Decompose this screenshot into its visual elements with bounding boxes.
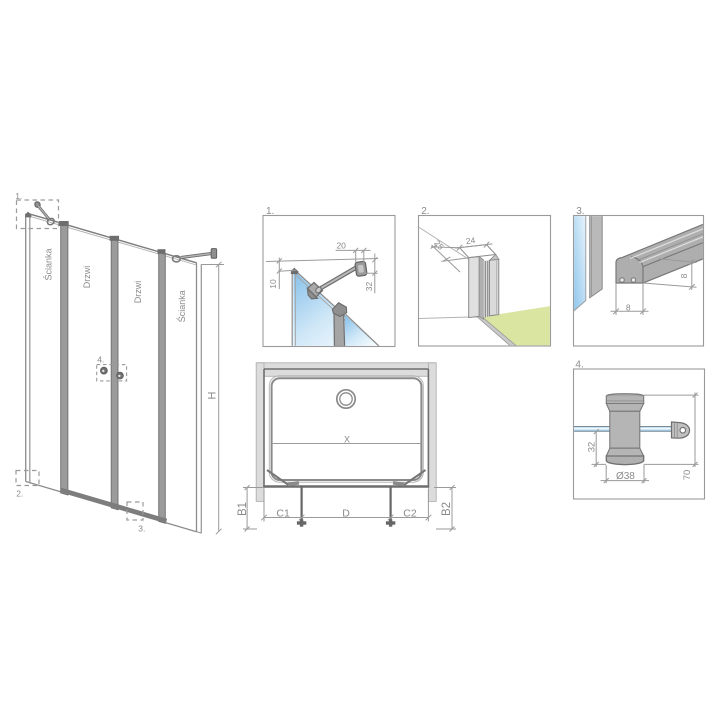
svg-text:C2: C2 [403, 507, 417, 519]
svg-text:B1: B1 [237, 502, 249, 516]
svg-text:D: D [342, 507, 350, 519]
svg-text:3.: 3. [138, 524, 145, 534]
svg-text:10: 10 [268, 279, 278, 289]
svg-text:Drzwi: Drzwi [82, 266, 92, 289]
svg-text:8: 8 [626, 303, 631, 313]
svg-text:C1: C1 [276, 507, 290, 519]
svg-text:B2: B2 [441, 502, 453, 516]
svg-text:H: H [206, 391, 218, 399]
svg-text:Ścianka: Ścianka [176, 290, 187, 322]
svg-text:20: 20 [336, 241, 346, 251]
svg-text:Ø38: Ø38 [616, 471, 635, 482]
svg-text:24: 24 [465, 235, 476, 246]
svg-text:4.: 4. [575, 360, 583, 371]
svg-text:70: 70 [682, 470, 693, 481]
svg-text:X: X [344, 435, 350, 445]
svg-text:8: 8 [679, 273, 689, 278]
svg-text:1.: 1. [15, 191, 22, 201]
svg-text:1.: 1. [266, 206, 274, 217]
svg-text:3.: 3. [576, 206, 584, 217]
svg-text:2.: 2. [421, 206, 429, 217]
svg-text:Ścianka: Ścianka [42, 248, 53, 280]
svg-text:Drzwi: Drzwi [133, 281, 143, 304]
svg-text:2.: 2. [16, 488, 23, 498]
svg-text:32: 32 [364, 282, 374, 292]
svg-text:4.: 4. [97, 354, 104, 364]
svg-text:32: 32 [586, 442, 597, 453]
